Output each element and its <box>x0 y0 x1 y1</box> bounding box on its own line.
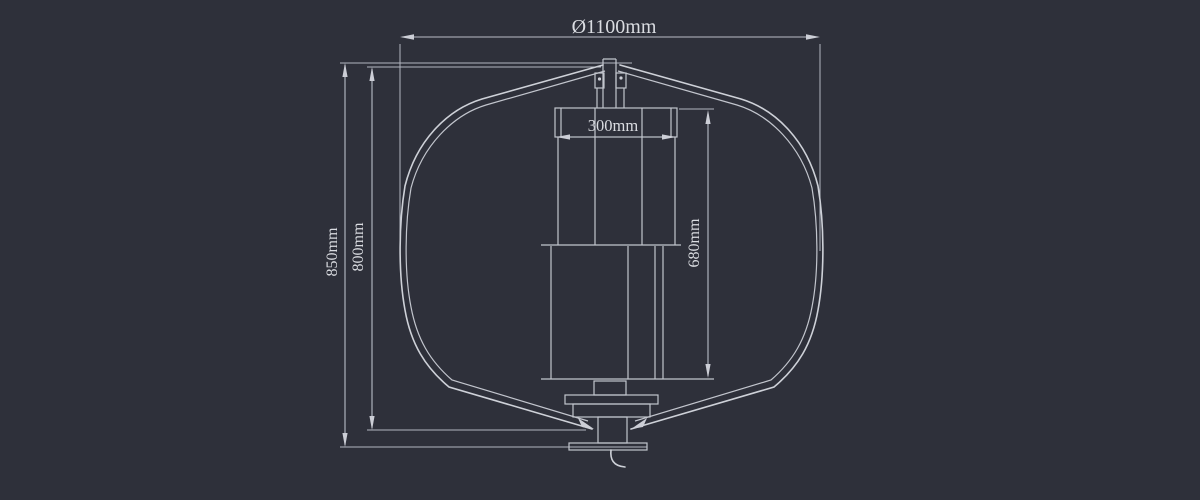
hub-bracket-right <box>616 73 626 88</box>
base-block <box>594 381 626 395</box>
hub-bolt-right <box>619 76 622 79</box>
blade-tip-arrow-left <box>578 418 594 429</box>
base-hub-block <box>598 417 627 443</box>
dimension-generator-height: 680mm <box>679 109 714 378</box>
top-mount-plate: 300mm <box>555 108 677 140</box>
hub-shaft <box>603 59 616 108</box>
base-flange-upper <box>565 395 658 404</box>
technical-drawing-canvas: Ø1100mm 850mm 800mm 680mm <box>0 0 1200 500</box>
generator-lower-housing <box>551 246 663 379</box>
rotor-blade-left-inner <box>406 71 605 421</box>
arrowhead-overall-top <box>342 63 347 77</box>
base-flange-mid <box>573 404 650 417</box>
dim-label-generator-height: 680mm <box>686 218 703 267</box>
arrowhead-generator-bottom <box>705 364 710 378</box>
arrowhead-overall-bottom <box>342 433 347 447</box>
arrowhead-generator-top <box>705 110 710 124</box>
hub-support-lines <box>597 88 624 108</box>
arrowhead-mount-right <box>662 134 676 139</box>
dimension-rotor-height: 800mm <box>350 67 601 430</box>
arrowhead-rotor-bottom <box>369 416 374 430</box>
arrowhead-rotor-top <box>369 67 374 81</box>
power-cable <box>611 450 625 467</box>
rotor-blade-right-inner <box>618 71 817 421</box>
wind-turbine-dimension-drawing: Ø1100mm 850mm 800mm 680mm <box>0 0 1200 500</box>
arrowhead-diameter-right <box>806 34 820 39</box>
rotor-blade-left-outer <box>400 65 603 429</box>
dim-label-overall-height: 850mm <box>324 227 341 276</box>
hub-bolt-left <box>598 77 601 80</box>
arrowhead-diameter-left <box>400 34 414 39</box>
dim-label-rotor-height: 800mm <box>350 222 367 271</box>
dim-label-rotor-diameter: Ø1100mm <box>572 16 657 38</box>
rotor-blade-right-outer <box>620 65 823 429</box>
